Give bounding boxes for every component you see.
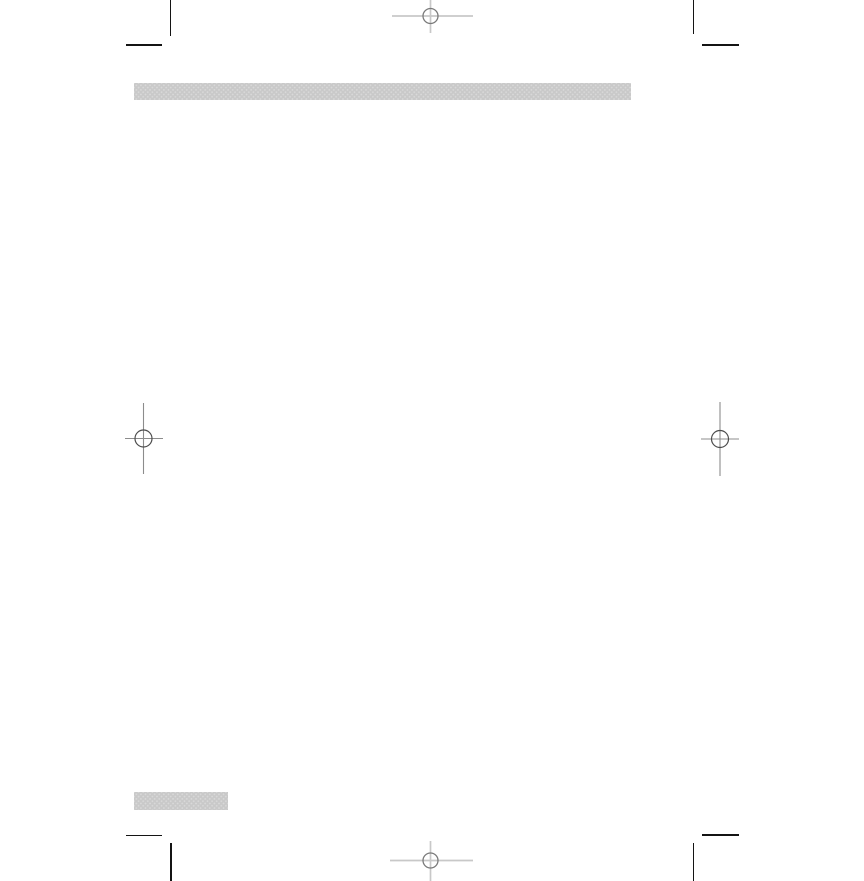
registration-mark-icon <box>124 402 164 475</box>
crop-mark-bottom-left-vertical <box>170 843 172 881</box>
registration-mark-icon <box>700 401 740 477</box>
registration-mark-icon <box>389 840 474 881</box>
crop-mark-bottom-left-horizontal <box>126 835 162 837</box>
crop-mark-bottom-right-horizontal <box>702 834 739 836</box>
crop-mark-top-left-horizontal <box>126 44 162 46</box>
header-placeholder-bar <box>134 83 631 100</box>
crop-mark-bottom-right-vertical <box>693 843 695 881</box>
crop-mark-top-left-vertical <box>170 0 172 36</box>
print-proof-page <box>0 0 864 881</box>
crop-mark-top-right-horizontal <box>702 44 739 46</box>
footer-placeholder-bar <box>134 792 228 810</box>
crop-mark-top-right-vertical <box>693 0 695 34</box>
registration-mark-icon <box>390 0 474 34</box>
